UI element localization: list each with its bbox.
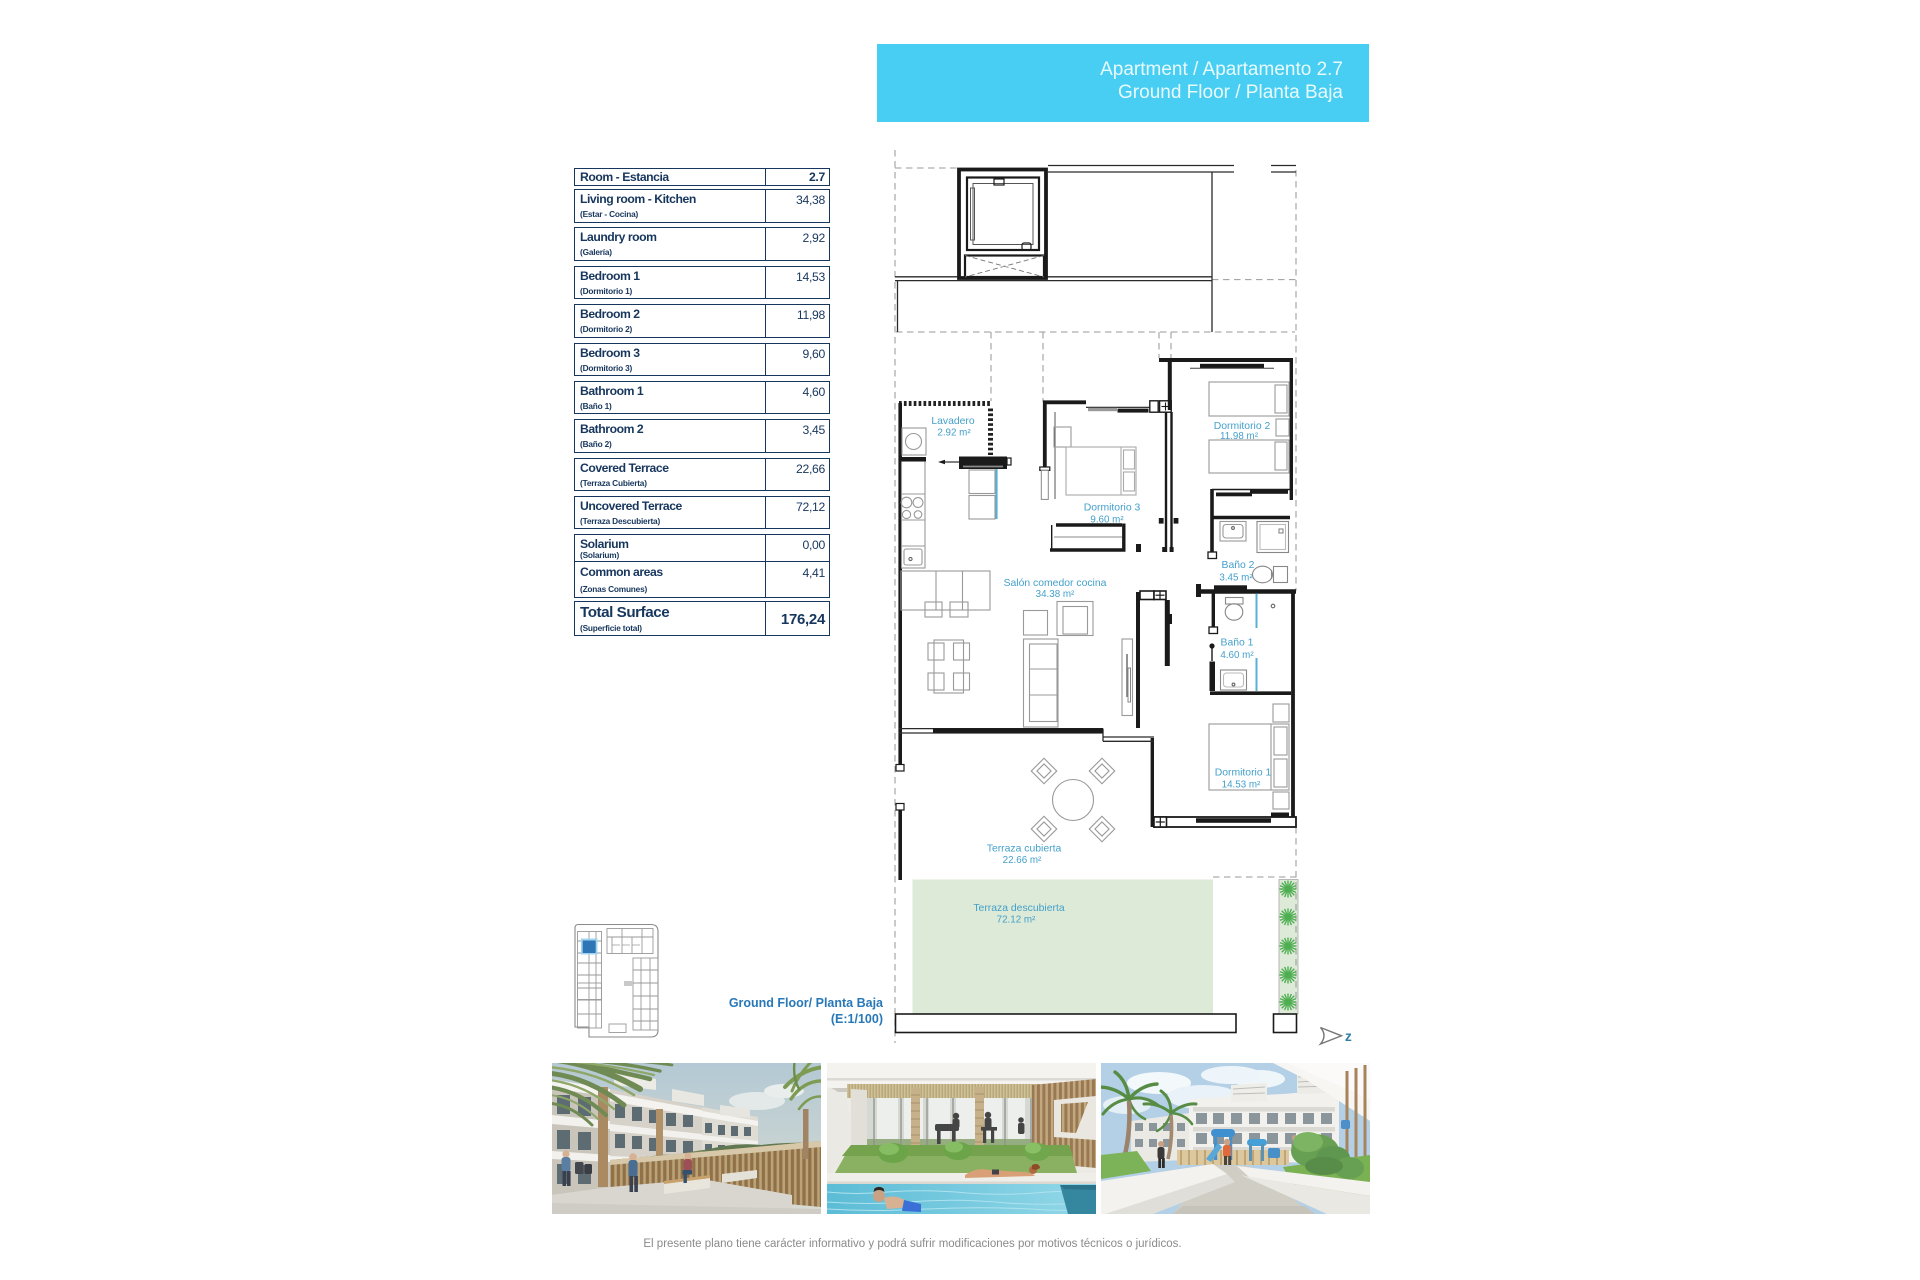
svg-text:Dormitorio 1: Dormitorio 1	[1215, 768, 1272, 779]
svg-text:Terraza descubierta: Terraza descubierta	[973, 903, 1064, 914]
svg-text:3.45 m²: 3.45 m²	[1219, 573, 1253, 584]
svg-text:72.12 m²: 72.12 m²	[997, 915, 1036, 926]
svg-text:Baño 1: Baño 1	[1221, 638, 1254, 649]
svg-text:2.92 m²: 2.92 m²	[937, 428, 971, 439]
svg-text:22.66 m²: 22.66 m²	[1003, 855, 1042, 866]
svg-text:11.98 m²: 11.98 m²	[1220, 431, 1259, 442]
svg-text:14.53 m²: 14.53 m²	[1222, 780, 1261, 791]
svg-text:Salón comedor cocina: Salón comedor cocina	[1004, 578, 1107, 589]
svg-text:9.60 m²: 9.60 m²	[1090, 515, 1124, 526]
svg-text:Terraza cubierta: Terraza cubierta	[987, 844, 1062, 855]
svg-text:Dormitorio 3: Dormitorio 3	[1084, 503, 1141, 514]
svg-text:34.38 m²: 34.38 m²	[1036, 589, 1075, 600]
svg-text:4.60 m²: 4.60 m²	[1220, 650, 1254, 661]
svg-text:z: z	[1345, 1029, 1352, 1044]
svg-text:Baño 2: Baño 2	[1222, 560, 1255, 571]
svg-text:Lavadero: Lavadero	[931, 416, 975, 427]
